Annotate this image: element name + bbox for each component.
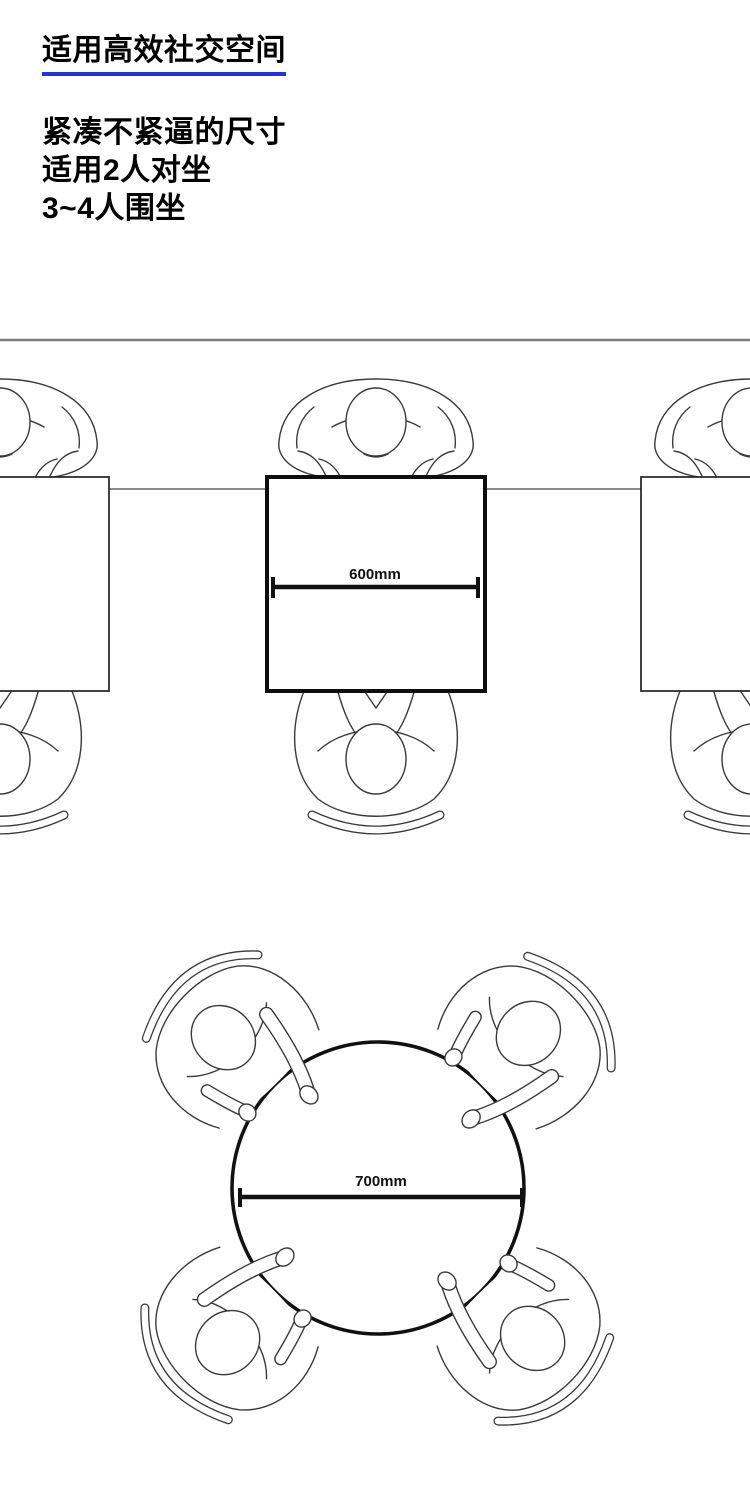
- diagram-canvas: 600mm 700mm: [0, 0, 750, 1500]
- square-table-center: [267, 477, 485, 691]
- square-table-scene: 600mm: [0, 340, 750, 830]
- square-table-right: [641, 477, 750, 691]
- person-figure-bottom-left: [0, 691, 81, 830]
- square-table-dimension-label: 600mm: [349, 566, 401, 583]
- page: 适用高效社交空间 紧凑不紧逼的尺寸 适用2人对坐 3~4人围坐: [0, 0, 750, 1500]
- person-figure-top-center: [279, 379, 473, 477]
- round-table-scene: 700mm: [118, 928, 639, 1449]
- person-figure-top-left: [0, 379, 97, 477]
- square-table-left: [0, 477, 109, 691]
- round-table-dimension-label: 700mm: [355, 1173, 407, 1190]
- person-figure-bottom-right: [671, 691, 750, 830]
- person-figure-top-right: [655, 379, 750, 477]
- person-figure-bottom-center: [295, 691, 458, 830]
